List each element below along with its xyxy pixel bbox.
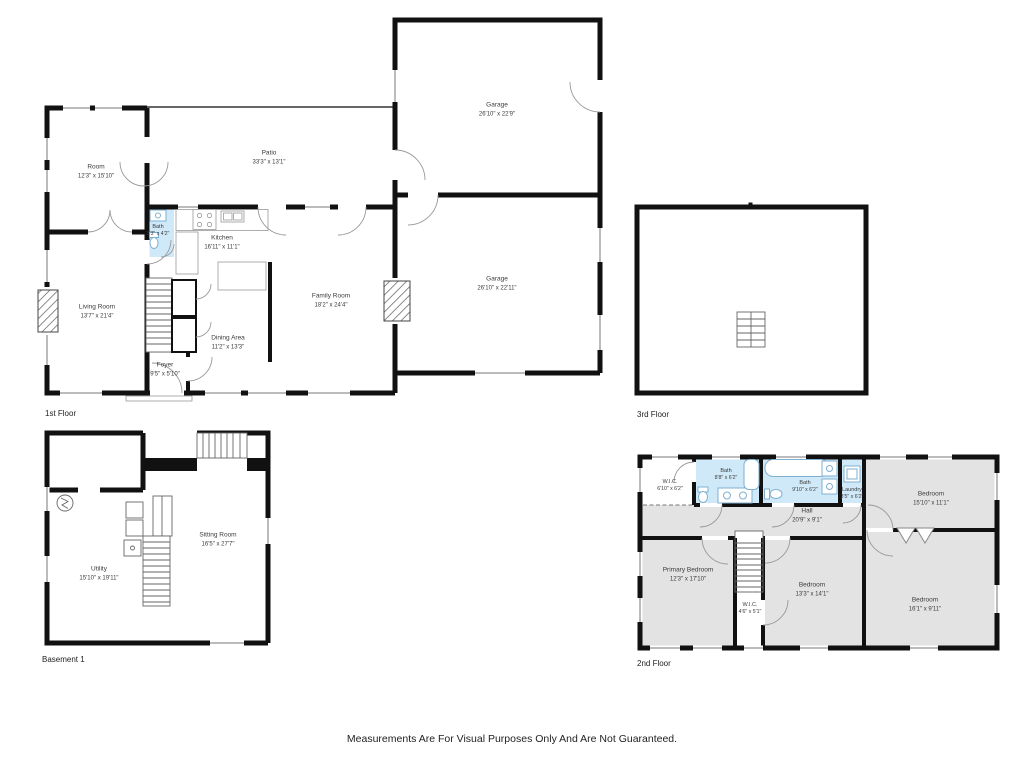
room-label-family-room: Family Room 18'2" x 24'4" xyxy=(312,293,350,310)
stairs-icon xyxy=(737,312,765,347)
room-label-bedroom-top-right: Bedroom 15'10" x 11'1" xyxy=(913,491,949,508)
closet xyxy=(172,318,196,352)
third-floor-plan xyxy=(637,203,866,394)
floor-label-basement: Basement 1 xyxy=(42,655,85,664)
room-label-patio: Patio 33'3" x 13'1" xyxy=(253,150,286,167)
dryer-icon xyxy=(126,520,143,536)
room-label-garage-lower: Garage 26'10" x 22'11" xyxy=(477,276,516,293)
closet xyxy=(172,280,196,316)
fireplace-icon xyxy=(35,287,61,335)
room-label-dining-area: Dining Area 11'2" x 13'3" xyxy=(211,335,245,352)
toilet-icon xyxy=(765,489,783,499)
washer-icon xyxy=(844,466,860,482)
bathtub-icon xyxy=(765,460,829,477)
room-label-foyer: Foyer 9'5" x 5'10" xyxy=(150,362,180,379)
stairs-icon xyxy=(197,433,247,458)
room-label-bath-left: Bath 8'8" x 6'2" xyxy=(715,468,738,482)
room-label-room: Room 12'3" x 15'10" xyxy=(78,164,114,181)
utility-sink-icon xyxy=(124,540,141,556)
floorplan-page: Room 12'3" x 15'10" Patio 33'3" x 13'1" … xyxy=(0,0,1024,768)
room-label-bedroom-middle: Bedroom 13'3" x 14'1" xyxy=(796,582,829,599)
room-label-bath-first: Bath 3'3" x 4'2" xyxy=(147,224,170,238)
room-label-garage-upper: Garage 26'10" x 22'9" xyxy=(479,102,515,119)
room-label-primary-bedroom: Primary Bedroom 12'3" x 17'10" xyxy=(663,567,714,584)
kitchen-sink-icon xyxy=(221,211,244,222)
room-label-living-room: Living Room 13'7" x 21'4" xyxy=(79,304,115,321)
porch-step xyxy=(126,396,192,401)
stairs-icon xyxy=(146,278,172,352)
stair-shaft-fill xyxy=(735,531,763,592)
first-floor-plan xyxy=(35,18,603,402)
floor-label-second: 2nd Floor xyxy=(637,659,671,668)
washer-icon xyxy=(126,502,143,518)
room-label-bath-right: Bath 9'10" x 6'2" xyxy=(792,480,818,494)
floor-label-third: 3rd Floor xyxy=(637,410,669,419)
stairs-icon xyxy=(143,496,172,606)
kitchen-island xyxy=(218,262,266,290)
walls xyxy=(637,207,866,393)
bathtub-icon xyxy=(744,460,759,490)
walls-inner xyxy=(188,262,270,393)
room-label-wic-top: W.I.C. 6'10" x 6'2" xyxy=(657,479,683,493)
water-heater-icon xyxy=(57,495,73,511)
vanity-sink-icon xyxy=(150,210,166,221)
room-label-kitchen: Kitchen 16'11" x 11'1" xyxy=(204,235,239,252)
room-label-sitting-room: Sitting Room 16'5" x 27'7" xyxy=(199,532,236,549)
fireplace-icon xyxy=(381,278,413,324)
floor-label-first: 1st Floor xyxy=(45,409,76,418)
disclaimer-text: Measurements Are For Visual Purposes Onl… xyxy=(0,733,1024,745)
room-label-bedroom-bottom-right: Bedroom 16'1" x 9'11" xyxy=(909,597,941,614)
wic-fill xyxy=(735,592,763,648)
room-label-laundry: Laundry 3'5" x 6'2" xyxy=(841,487,864,501)
room-label-wic-bottom: W.I.C. 4'6" x 5'1" xyxy=(739,602,762,616)
room-label-hall: Hall 20'9" x 9'1" xyxy=(792,508,822,525)
stove-icon xyxy=(193,210,216,230)
room-label-utility: Utility 15'10" x 19'11" xyxy=(79,566,118,583)
toilet-icon xyxy=(698,487,708,503)
second-floor-plan xyxy=(638,455,1000,651)
vanity-sink-icon xyxy=(718,488,752,503)
